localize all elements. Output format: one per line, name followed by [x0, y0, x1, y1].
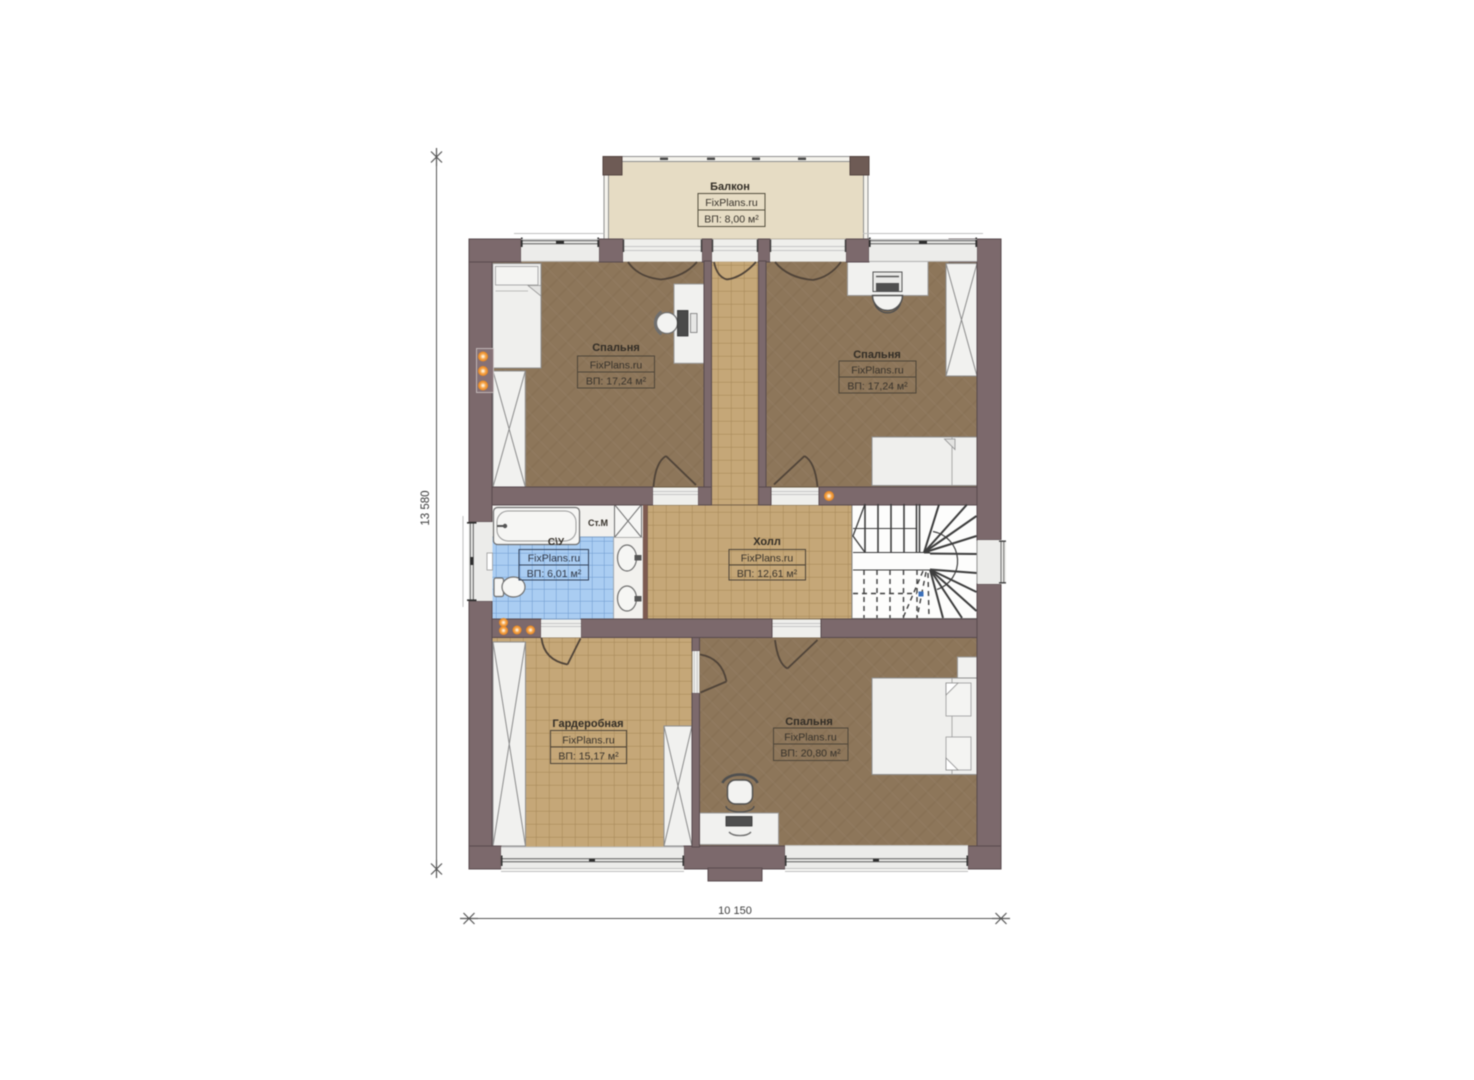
svg-text:FixPlans.ru: FixPlans.ru — [705, 197, 758, 209]
svg-text:Спальня: Спальня — [592, 342, 640, 354]
svg-text:FixPlans.ru: FixPlans.ru — [851, 365, 904, 377]
svg-text:ВП: 17,24 м²: ВП: 17,24 м² — [847, 381, 908, 393]
svg-text:FixPlans.ru: FixPlans.ru — [784, 732, 837, 744]
svg-text:С\У: С\У — [548, 537, 565, 548]
svg-text:FixPlans.ru: FixPlans.ru — [590, 360, 643, 372]
svg-text:Балкон: Балкон — [710, 181, 750, 193]
svg-text:Гардеробная: Гардеробная — [552, 718, 623, 730]
svg-text:Спальня: Спальня — [785, 716, 833, 728]
svg-text:10 150: 10 150 — [718, 905, 752, 917]
svg-text:ВП: 20,80 м²: ВП: 20,80 м² — [780, 748, 841, 760]
svg-text:Ст.М: Ст.М — [588, 518, 608, 528]
svg-text:Спальня: Спальня — [853, 349, 901, 361]
svg-text:ВП: 17,24 м²: ВП: 17,24 м² — [586, 376, 647, 388]
svg-text:Холл: Холл — [753, 536, 781, 548]
svg-text:FixPlans.ru: FixPlans.ru — [562, 735, 615, 747]
svg-text:ВП: 6,01 м²: ВП: 6,01 м² — [527, 568, 582, 580]
svg-text:ВП: 8,00 м²: ВП: 8,00 м² — [704, 214, 759, 226]
svg-text:FixPlans.ru: FixPlans.ru — [528, 553, 581, 565]
svg-text:ВП: 15,17 м²: ВП: 15,17 м² — [558, 751, 619, 763]
svg-text:FixPlans.ru: FixPlans.ru — [741, 553, 794, 565]
svg-text:ВП: 12,61 м²: ВП: 12,61 м² — [737, 568, 798, 580]
svg-text:13 580: 13 580 — [420, 490, 432, 525]
